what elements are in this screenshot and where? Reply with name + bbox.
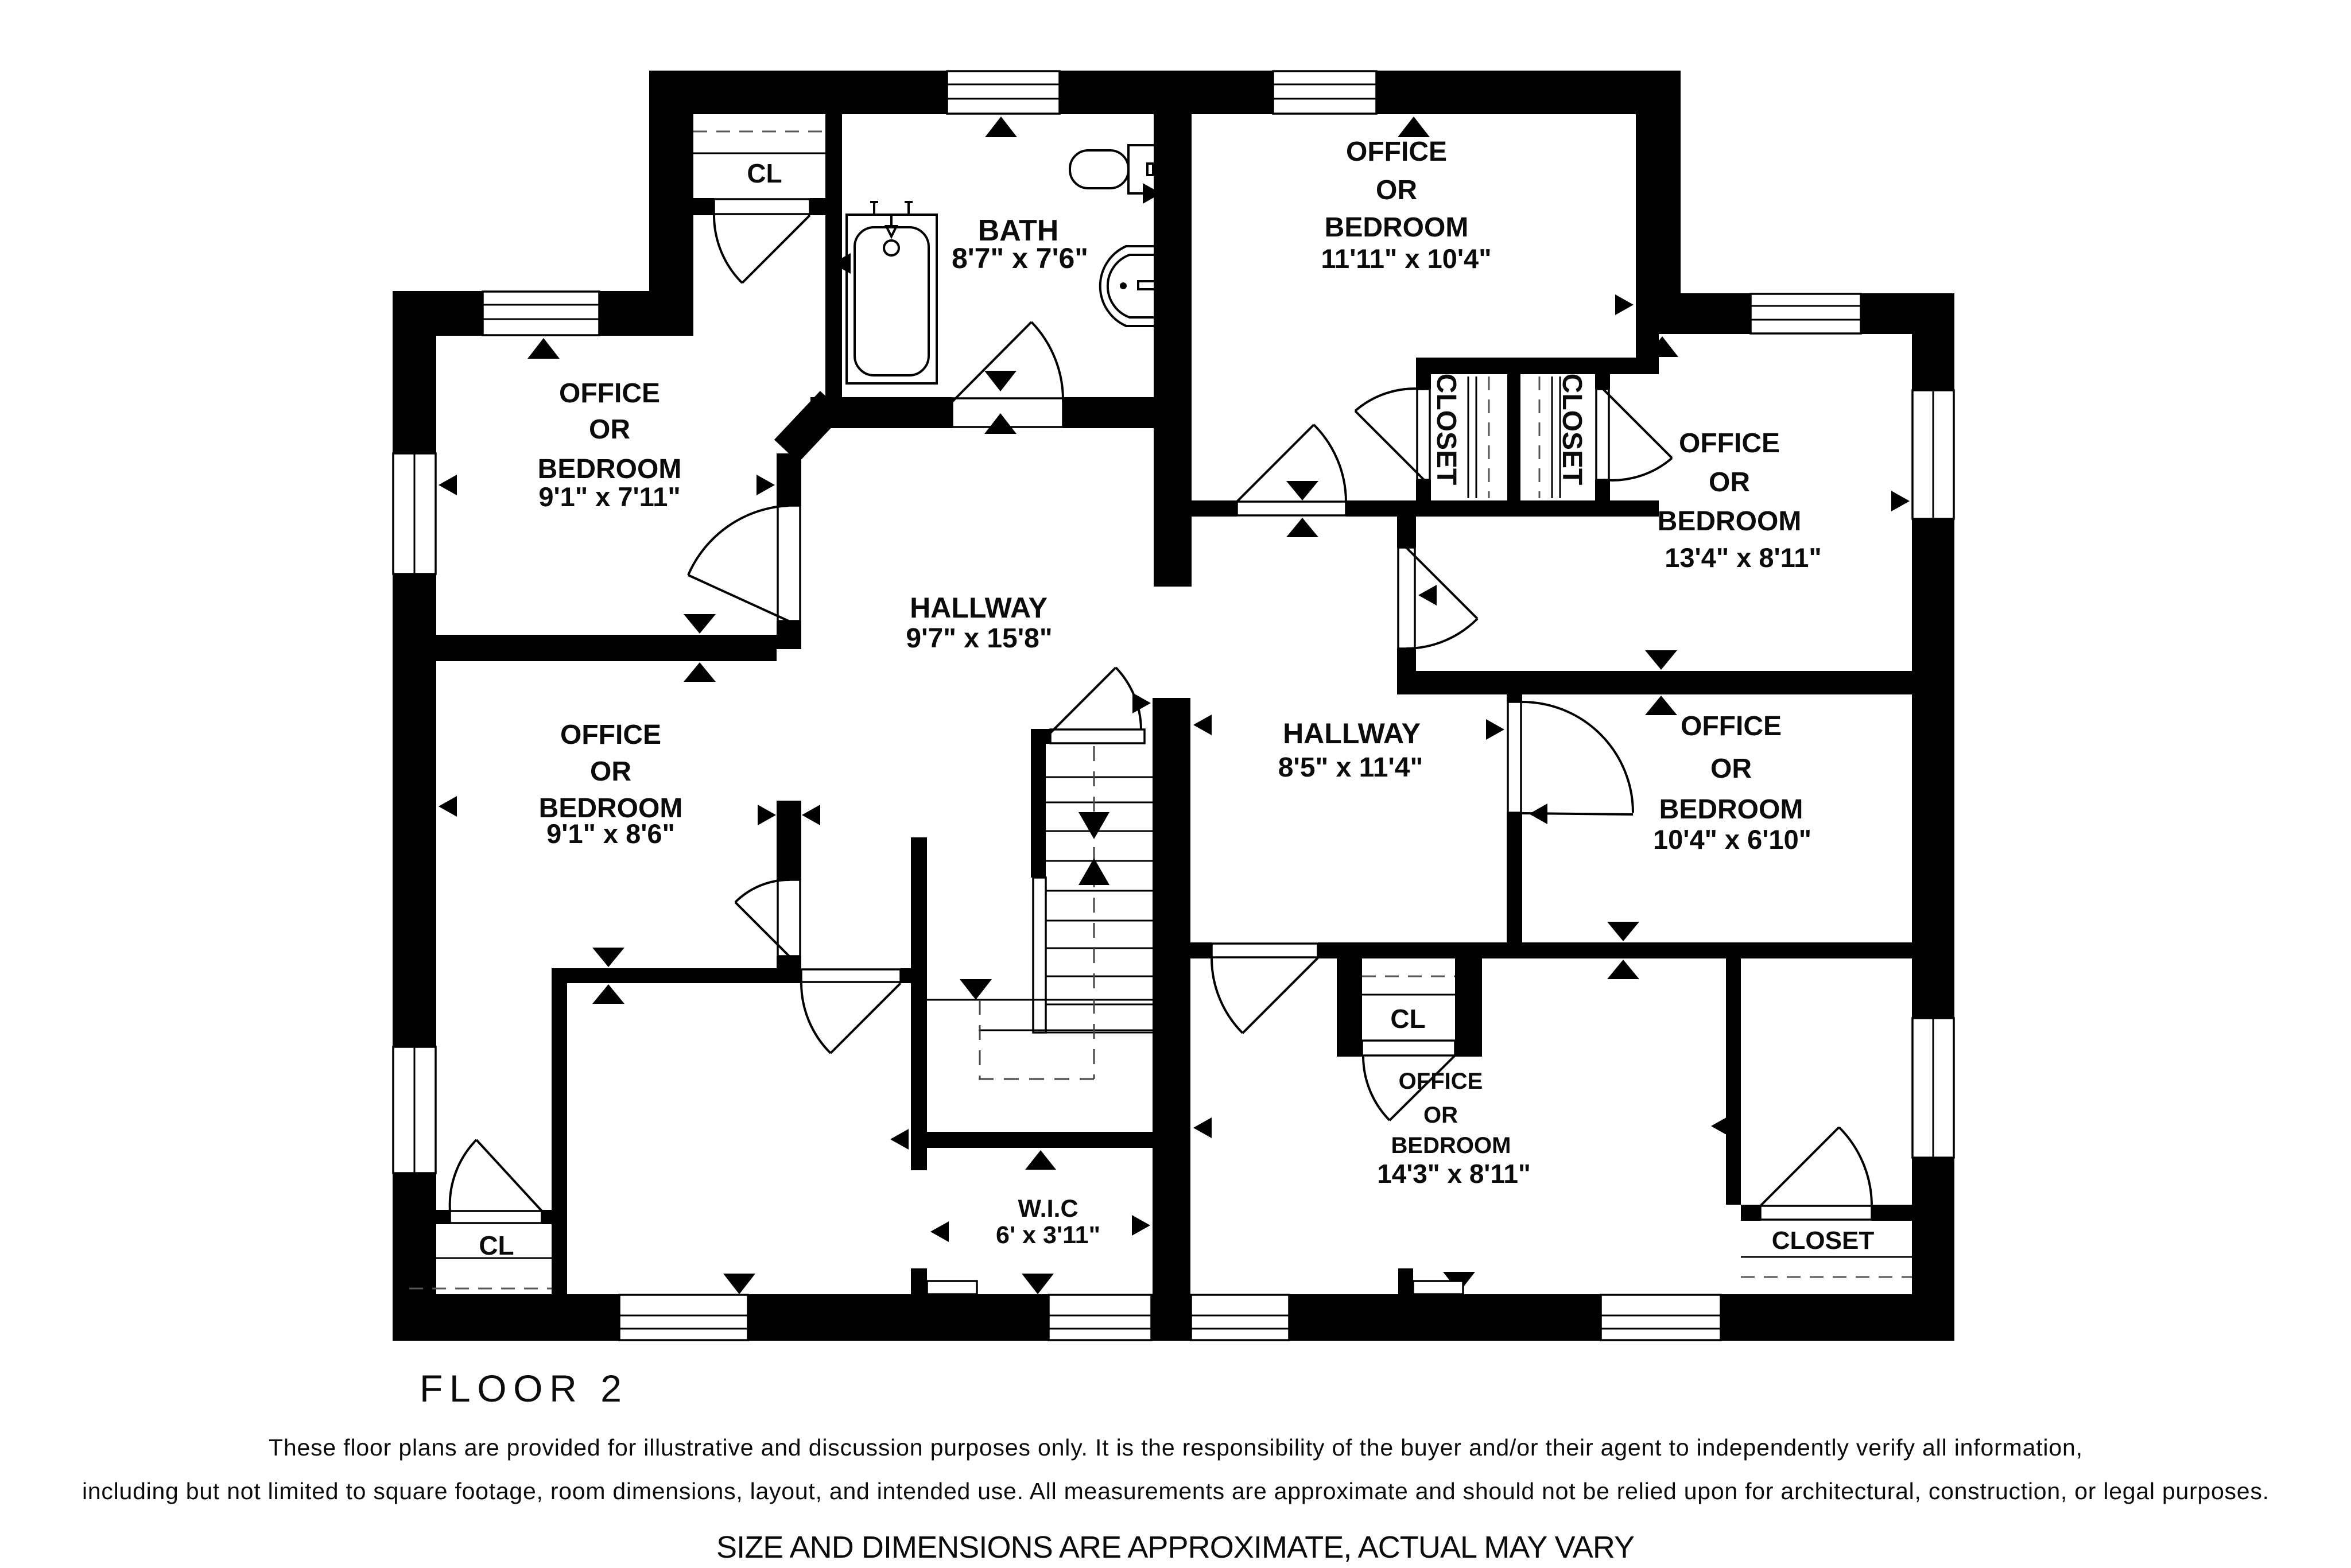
svg-text:10'4" x 6'10": 10'4" x 6'10"	[1653, 824, 1811, 855]
svg-text:CLOSET: CLOSET	[1431, 374, 1461, 486]
svg-text:OR: OR	[1423, 1103, 1458, 1128]
svg-text:9'1" x 7'11": 9'1" x 7'11"	[538, 482, 680, 512]
svg-text:CLOSET: CLOSET	[1557, 374, 1587, 486]
svg-text:CL: CL	[1390, 1004, 1425, 1034]
svg-text:CL: CL	[747, 158, 782, 188]
svg-text:OFFICE: OFFICE	[1399, 1069, 1483, 1094]
svg-text:FLOOR 2: FLOOR 2	[420, 1367, 622, 1410]
svg-text:OR: OR	[1710, 754, 1752, 784]
svg-text:HALLWAY: HALLWAY	[1283, 717, 1421, 750]
svg-text:11'11" x 10'4": 11'11" x 10'4"	[1321, 243, 1492, 274]
svg-text:14'3" x 8'11": 14'3" x 8'11"	[1377, 1159, 1531, 1189]
svg-text:9'1" x 8'6": 9'1" x 8'6"	[546, 818, 675, 849]
svg-text:CLOSET: CLOSET	[1772, 1227, 1875, 1255]
svg-text:SIZE AND DIMENSIONS ARE APPROX: SIZE AND DIMENSIONS ARE APPROXIMATE, ACT…	[716, 1530, 1635, 1565]
svg-text:OFFICE: OFFICE	[1679, 428, 1780, 459]
svg-text:BEDROOM: BEDROOM	[1658, 506, 1802, 537]
svg-text:OFFICE: OFFICE	[1681, 711, 1782, 742]
svg-text:OFFICE: OFFICE	[560, 720, 661, 750]
svg-text:OR: OR	[590, 756, 631, 787]
svg-text:CL: CL	[479, 1231, 514, 1260]
svg-text:BEDROOM: BEDROOM	[1325, 212, 1469, 243]
svg-text:9'7" x 15'8": 9'7" x 15'8"	[906, 623, 1052, 654]
svg-text:including but not limited to s: including but not limited to square foot…	[82, 1478, 2269, 1504]
svg-text:These floor plans are provided: These floor plans are provided for illus…	[269, 1434, 2082, 1461]
svg-text:HALLWAY: HALLWAY	[910, 592, 1048, 624]
svg-text:OR: OR	[589, 414, 630, 445]
svg-text:OFFICE: OFFICE	[559, 378, 660, 409]
svg-text:BEDROOM: BEDROOM	[1659, 794, 1803, 825]
svg-text:6' x 3'11": 6' x 3'11"	[996, 1221, 1100, 1249]
svg-text:OR: OR	[1709, 467, 1750, 498]
svg-text:OR: OR	[1376, 175, 1417, 205]
svg-text:W.I.C: W.I.C	[1018, 1195, 1078, 1222]
svg-text:OFFICE: OFFICE	[1346, 137, 1447, 167]
svg-text:BEDROOM: BEDROOM	[538, 454, 682, 484]
svg-text:13'4" x 8'11": 13'4" x 8'11"	[1665, 542, 1821, 573]
svg-text:8'7" x 7'6": 8'7" x 7'6"	[952, 242, 1088, 274]
svg-text:8'5" x 11'4": 8'5" x 11'4"	[1278, 752, 1423, 783]
svg-text:BEDROOM: BEDROOM	[1391, 1133, 1511, 1158]
